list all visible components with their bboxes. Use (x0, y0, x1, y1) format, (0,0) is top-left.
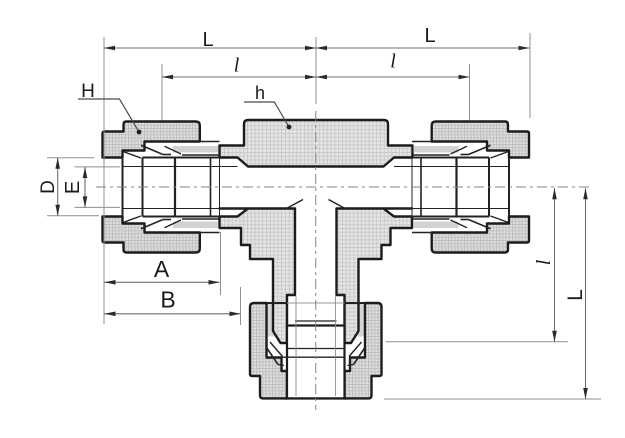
svg-text:A: A (154, 256, 170, 282)
svg-text:L: L (564, 289, 587, 301)
svg-text:l: l (234, 55, 240, 77)
svg-text:L: L (424, 25, 435, 47)
svg-text:B: B (160, 287, 175, 313)
svg-text:h: h (255, 83, 265, 103)
svg-text:D: D (38, 180, 59, 194)
svg-text:l: l (533, 259, 555, 265)
svg-text:H: H (81, 81, 95, 102)
svg-text:E: E (62, 181, 84, 194)
svg-text:L: L (202, 29, 213, 51)
svg-text:l: l (390, 51, 396, 73)
